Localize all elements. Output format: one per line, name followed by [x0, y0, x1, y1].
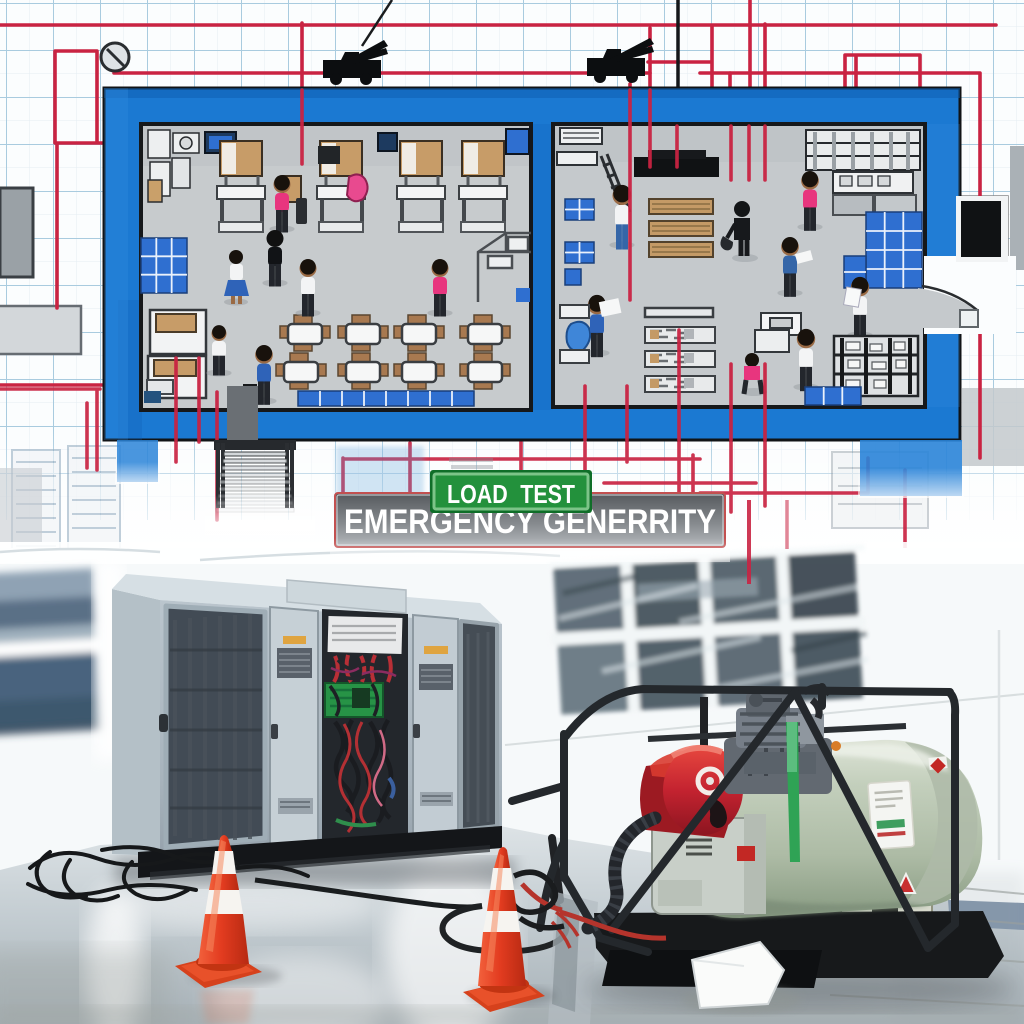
svg-text:LOAD TEST: LOAD TEST [447, 479, 575, 509]
